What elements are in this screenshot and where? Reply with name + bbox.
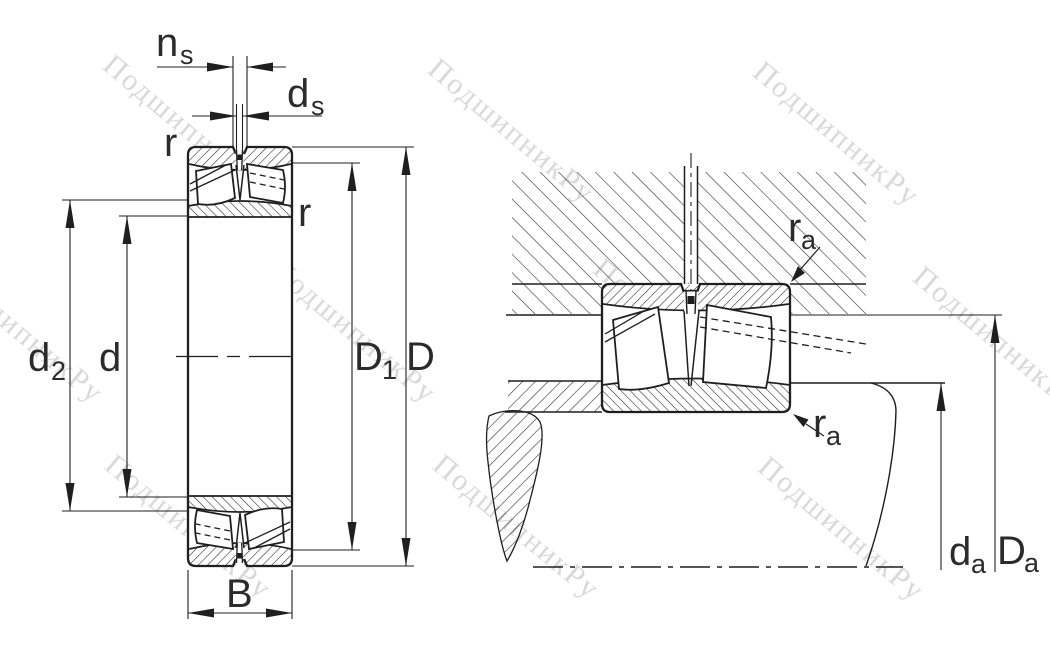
label-Da: D a [997,529,1040,578]
label-da: d a [949,530,987,579]
label-r-side: r [298,191,311,235]
mounted-rollers [605,305,866,390]
bearing-drawing-svg: n s d s r r d 2 d D 1 D B r a [0,0,1050,650]
dimension-labels: n s d s r r d 2 d D 1 D B r a [28,21,1040,616]
label-B: B [226,572,253,616]
label-D1: D 1 [354,335,397,385]
label-d: d [99,336,121,380]
shaft-shoulder-section [487,411,542,561]
shaft-abutment-left [508,381,602,412]
label-ds: d s [287,72,325,121]
label-ns: n s [156,21,194,70]
label-d2: d 2 [28,336,66,386]
label-r-top: r [164,121,177,165]
right-view-mounting-section [487,153,1002,572]
shaft-end-curve [866,383,896,566]
label-ra-bottom: r a [813,402,842,451]
technical-drawing-page: ПодшипникРу ПодшипникРу ПодшипникРу Подш… [0,0,1050,650]
label-D: D [406,335,435,379]
